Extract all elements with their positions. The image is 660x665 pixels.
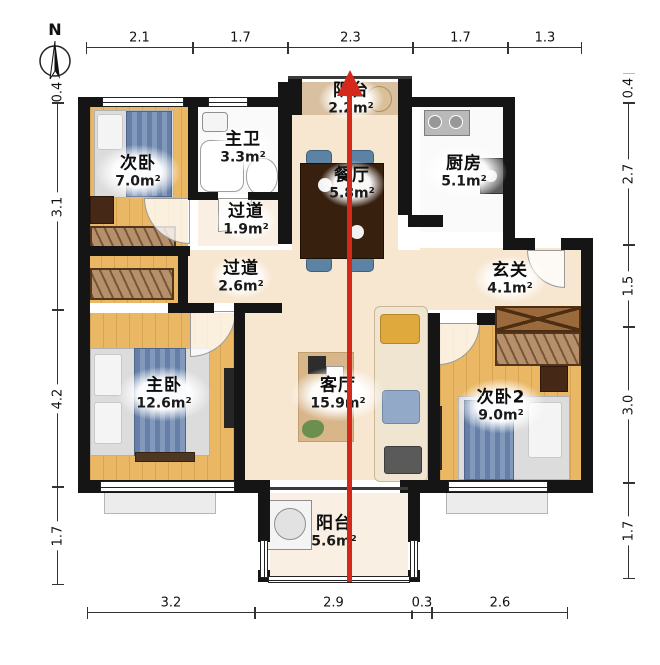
wall-right-exterior [581,238,593,492]
room-label-kitchen: 厨房 5.1m² [421,145,507,200]
room-label-bedroom2: 次卧 7.0m² [95,145,181,200]
shoe-cabinet-icon [495,306,581,332]
north-arrow-line [347,92,352,582]
window-balcony-bottom [268,576,410,583]
dim-left-2: 3.1 [57,103,58,310]
dim-top-3: 2.3 [288,47,413,48]
bay-window-master [104,492,216,514]
dim-value: 3.1 [51,192,66,221]
room-label-entry: 玄关 4.1m² [473,256,547,303]
room-name: 玄关 [487,262,533,281]
dim-bottom-4: 2.6 [432,612,568,613]
room-label-bedroom3: 次卧2 9.0m² [457,379,546,434]
tv-icon-master [224,368,234,428]
dim-value: 1.5 [622,272,637,301]
room-area: 12.6m² [136,395,191,411]
window-bedroom2 [102,97,184,107]
north-arrow-head [337,70,363,96]
wall-balcony-top-left [288,78,302,115]
window-balcony-left [260,540,268,578]
room-label-master-bath: 主卫 3.3m² [210,125,276,172]
bed-bench-icon [135,452,195,462]
room-name: 客厅 [310,377,365,396]
window-bedroom3 [448,481,548,492]
bay-window-bedroom3 [446,492,548,514]
room-name: 过道 [218,260,264,279]
wardrobe-icon-master [90,268,174,300]
sink-basin-left [428,115,442,129]
dim-left-4: 1.7 [57,487,58,585]
dim-left-3: 4.2 [57,310,58,487]
dim-top-1: 2.1 [86,47,193,48]
room-label-balcony-bottom: 阳台 5.6m² [291,505,377,560]
room-area: 1.9m² [223,221,269,237]
sofa-pillow-blue [382,390,420,424]
compass-north-label: N [30,20,80,39]
dim-bottom-3: 0.3 [412,612,432,613]
room-area: 3.3m² [220,149,266,165]
room-area: 9.0m² [477,407,526,423]
wall-master-living [234,303,245,482]
dim-right-1: 0.4 [628,73,629,103]
compass: N [30,20,80,87]
room-area: 4.1m² [487,280,533,296]
room-label-hallway2: 过道 2.6m² [210,256,272,299]
wall-left-exterior [78,97,90,492]
wall-bedroom2-bath [188,97,198,197]
room-name: 厨房 [441,155,487,174]
wall-balcony-top-right [398,78,412,115]
room-area: 5.8m² [329,185,375,201]
dim-right-5: 1.7 [628,483,629,579]
dim-value: 1.7 [226,31,255,46]
room-label-living: 客厅 15.9m² [290,367,385,422]
sink-basin-right [449,115,463,129]
dim-bottom-1: 3.2 [87,612,255,613]
dim-value: 4.2 [51,384,66,413]
wall-hall-living-a [168,303,214,313]
room-name: 次卧 [115,155,161,174]
dim-value: 2.1 [125,31,154,46]
room-name: 餐厅 [329,167,375,186]
dim-value: 2.9 [319,596,348,611]
sofa-throw-dark [384,446,422,474]
dim-top-4: 1.7 [413,47,508,48]
room-label-dining: 餐厅 5.8m² [319,161,385,208]
sofa-pillow-yellow [380,314,420,344]
room-name: 主卫 [220,131,266,150]
room-name: 次卧2 [477,389,526,408]
plate-icon [350,225,364,239]
wall-living-bedroom3 [428,313,440,480]
dim-value: 2.6 [486,596,515,611]
wall-entry-notch-a [503,238,535,250]
dim-right-3: 1.5 [628,245,629,327]
dim-value: 3.2 [157,596,186,611]
wall-bath-bottom-a [188,192,218,200]
dim-value: 2.7 [622,160,637,189]
room-area: 5.1m² [441,173,487,189]
dim-value: 2.3 [336,31,365,46]
dim-value: 3.0 [622,391,637,420]
room-label-master-bedroom: 主卧 12.6m² [116,367,211,422]
sliding-door-living-balcony [270,487,408,490]
wall-top-kitchen [408,97,515,107]
dim-top-2: 1.7 [193,47,288,48]
dim-value: 0.4 [622,74,637,103]
dim-right-4: 3.0 [628,327,629,483]
wall-kitchen-bottom [408,215,443,227]
dim-bottom-2: 2.9 [255,612,412,613]
window-bath [208,97,248,107]
wardrobe-icon-bedroom3 [495,332,581,366]
wall-bedroom3-top [477,313,495,325]
dim-value: 1.7 [51,522,66,551]
dresser-icon-bedroom2 [90,196,114,224]
dim-top-5: 1.3 [508,47,582,48]
room-area: 7.0m² [115,173,161,189]
room-name: 主卧 [136,377,191,396]
dim-value: 1.3 [531,31,560,46]
wall-closet-top [78,246,190,256]
wall-balcony-bottom-right [408,480,420,542]
room-name: 过道 [223,203,269,222]
room-area: 2.6m² [218,278,264,294]
window-master [100,481,235,492]
dim-value: 1.7 [622,517,637,546]
room-label-hallway1: 过道 1.9m² [215,199,277,242]
wall-balcony-bottom-left [258,480,270,542]
window-balcony-right [410,540,418,578]
room-area: 15.9m² [310,395,365,411]
dim-value: 1.7 [446,31,475,46]
dim-right-2: 2.7 [628,103,629,245]
compass-rose-icon [35,39,75,83]
floor-plan: 次卧 7.0m² 主卫 3.3m² 阳台 2.2m² 餐厅 5.8m² 厨房 5… [0,0,660,665]
